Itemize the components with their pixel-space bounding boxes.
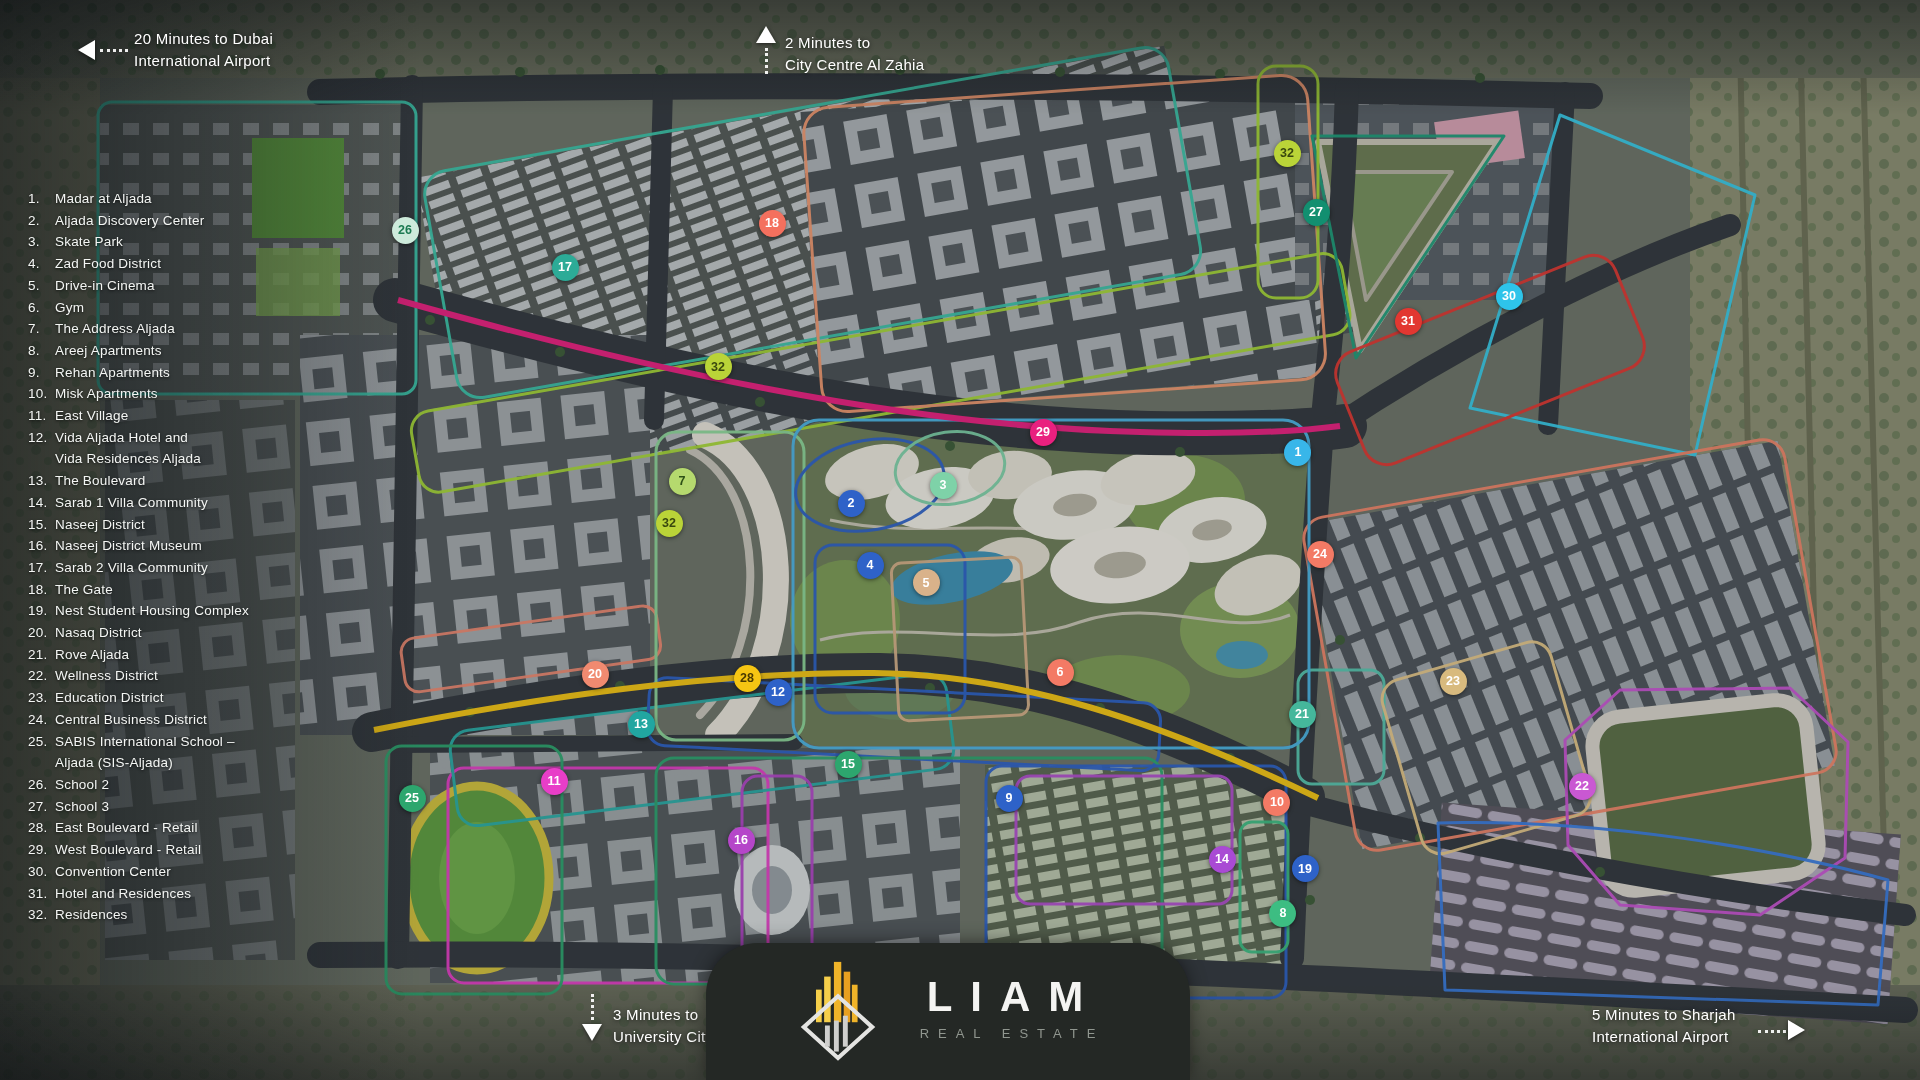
annotation-line: City Centre Al Zahia [785,54,924,76]
legend-item-label: East Village [55,405,128,427]
legend-item-number: 4. [28,253,55,275]
legend-item: 6.Gym [28,297,249,319]
legend-item-number: 26. [28,774,55,796]
legend-item-number: 28. [28,817,55,839]
legend-item-number: 1. [28,188,55,210]
map-artwork [0,0,1920,1080]
legend-item-label: Areej Apartments [55,340,162,362]
legend-item-number: 8. [28,340,55,362]
legend-item-label: School 2 [55,774,109,796]
legend-item: 16.Naseej District Museum [28,535,249,557]
legend-item: 18.The Gate [28,579,249,601]
annotation-line: International Airport [134,50,273,72]
legend-item-label: The Gate [55,579,113,601]
legend-item-label: Gym [55,297,84,319]
legend-item: 25.SABIS International School – Aljada (… [28,731,249,774]
arrow-up-icon [756,26,776,43]
arrow-down-icon [582,1024,602,1041]
legend-item: 3.Skate Park [28,231,249,253]
legend-item-number: 32. [28,904,55,926]
legend-item-number: 22. [28,665,55,687]
legend-item: 12.Vida Aljada Hotel and Vida Residences… [28,427,249,470]
legend-item-number: 7. [28,318,55,340]
legend-item-number: 17. [28,557,55,579]
dotted-trail-icon [591,994,594,1020]
legend-item-label: Misk Apartments [55,383,158,405]
legend-item: 17.Sarab 2 Villa Community [28,557,249,579]
legend-item-label: Central Business District [55,709,207,731]
legend-item: 10.Misk Apartments [28,383,249,405]
legend-item-number: 2. [28,210,55,232]
legend-item-number: 18. [28,579,55,601]
legend-item-label: Skate Park [55,231,123,253]
legend-item: 13.The Boulevard [28,470,249,492]
legend-item-label: East Boulevard - Retail [55,817,198,839]
legend-item: 29.West Boulevard - Retail [28,839,249,861]
legend-item: 19.Nest Student Housing Complex [28,600,249,622]
legend-item-label: Hotel and Residences [55,883,191,905]
legend-item-label: Residences [55,904,128,926]
legend-list: 1.Madar at Aljada2.Aljada Discovery Cent… [28,188,249,926]
legend-item: 11.East Village [28,405,249,427]
legend-item-number: 31. [28,883,55,905]
arrow-left-icon [78,40,95,60]
dotted-trail-icon [1758,1030,1786,1033]
legend-item-label: Rehan Apartments [55,362,170,384]
legend-item: 24.Central Business District [28,709,249,731]
annotation-line: University City [613,1026,713,1048]
legend-item-number: 30. [28,861,55,883]
brand-name: LIAM [917,975,1102,1019]
brand-tagline: REAL ESTATE [914,1026,1105,1041]
legend-item-label: Wellness District [55,665,158,687]
legend-item-number: 9. [28,362,55,384]
legend-item-number: 23. [28,687,55,709]
legend-item-number: 21. [28,644,55,666]
legend-item-number: 27. [28,796,55,818]
annotation-line: 20 Minutes to Dubai [134,28,273,50]
legend-item-label: Sarab 1 Villa Community [55,492,208,514]
legend-item: 28.East Boulevard - Retail [28,817,249,839]
legend-item-label: School 3 [55,796,109,818]
legend-item: 32.Residences [28,904,249,926]
legend-item: 22.Wellness District [28,665,249,687]
aljada-masterplan: 1.Madar at Aljada2.Aljada Discovery Cent… [0,0,1920,1080]
annotation-line: 3 Minutes to [613,1004,713,1026]
legend-item: 23.Education District [28,687,249,709]
legend-item-number: 5. [28,275,55,297]
legend-item-label: Sarab 2 Villa Community [55,557,208,579]
legend-item-label: SABIS International School – Aljada (SIS… [55,731,235,774]
legend-item: 21.Rove Aljada [28,644,249,666]
legend-item: 7.The Address Aljada [28,318,249,340]
legend-item-label: Naseej District Museum [55,535,202,557]
logo-text: LIAM REAL ESTATE [914,957,1105,1041]
legend-item-number: 12. [28,427,55,470]
tint-overlay [0,0,1920,1080]
annotation-line: 2 Minutes to [785,32,924,54]
legend-item-number: 20. [28,622,55,644]
legend-item-number: 11. [28,405,55,427]
legend-item: 31.Hotel and Residences [28,883,249,905]
legend-item: 8.Areej Apartments [28,340,249,362]
legend-item-label: Convention Center [55,861,171,883]
legend-item-number: 29. [28,839,55,861]
legend-item-number: 25. [28,731,55,774]
legend-item: 15.Naseej District [28,514,249,536]
liam-logo-card: LIAM REAL ESTATE [706,943,1190,1080]
legend-item-number: 6. [28,297,55,319]
legend-item-number: 10. [28,383,55,405]
legend-item: 27.School 3 [28,796,249,818]
legend-item-label: Drive-in Cinema [55,275,155,297]
legend-item: 1.Madar at Aljada [28,188,249,210]
legend-item-number: 19. [28,600,55,622]
legend-item: 5.Drive-in Cinema [28,275,249,297]
legend-item: 9.Rehan Apartments [28,362,249,384]
dotted-trail-icon [765,48,768,74]
legend-item-label: Nasaq District [55,622,142,644]
liam-logo-icon [792,957,884,1063]
annotation-line: International Airport [1592,1026,1736,1048]
arrow-right-icon [1788,1020,1805,1040]
legend-item-number: 16. [28,535,55,557]
legend-item: 26.School 2 [28,774,249,796]
legend-item-label: The Boulevard [55,470,145,492]
legend-item-label: Vida Aljada Hotel and Vida Residences Al… [55,427,201,470]
legend-item: 2.Aljada Discovery Center [28,210,249,232]
legend-item-number: 15. [28,514,55,536]
legend-item-label: The Address Aljada [55,318,175,340]
legend-item: 14.Sarab 1 Villa Community [28,492,249,514]
legend-item-number: 14. [28,492,55,514]
legend-item: 4.Zad Food District [28,253,249,275]
legend-item-number: 13. [28,470,55,492]
legend-item-label: Zad Food District [55,253,161,275]
legend-item-number: 24. [28,709,55,731]
legend-item-label: Naseej District [55,514,145,536]
legend-item-label: Nest Student Housing Complex [55,600,249,622]
dotted-trail-icon [100,49,128,52]
legend-item: 20.Nasaq District [28,622,249,644]
annotation-line: 5 Minutes to Sharjah [1592,1004,1736,1026]
legend-item-label: West Boulevard - Retail [55,839,201,861]
legend-item-number: 3. [28,231,55,253]
legend-item-label: Madar at Aljada [55,188,152,210]
legend-item: 30.Convention Center [28,861,249,883]
legend-item-label: Aljada Discovery Center [55,210,204,232]
legend-item-label: Education District [55,687,164,709]
legend-item-label: Rove Aljada [55,644,129,666]
